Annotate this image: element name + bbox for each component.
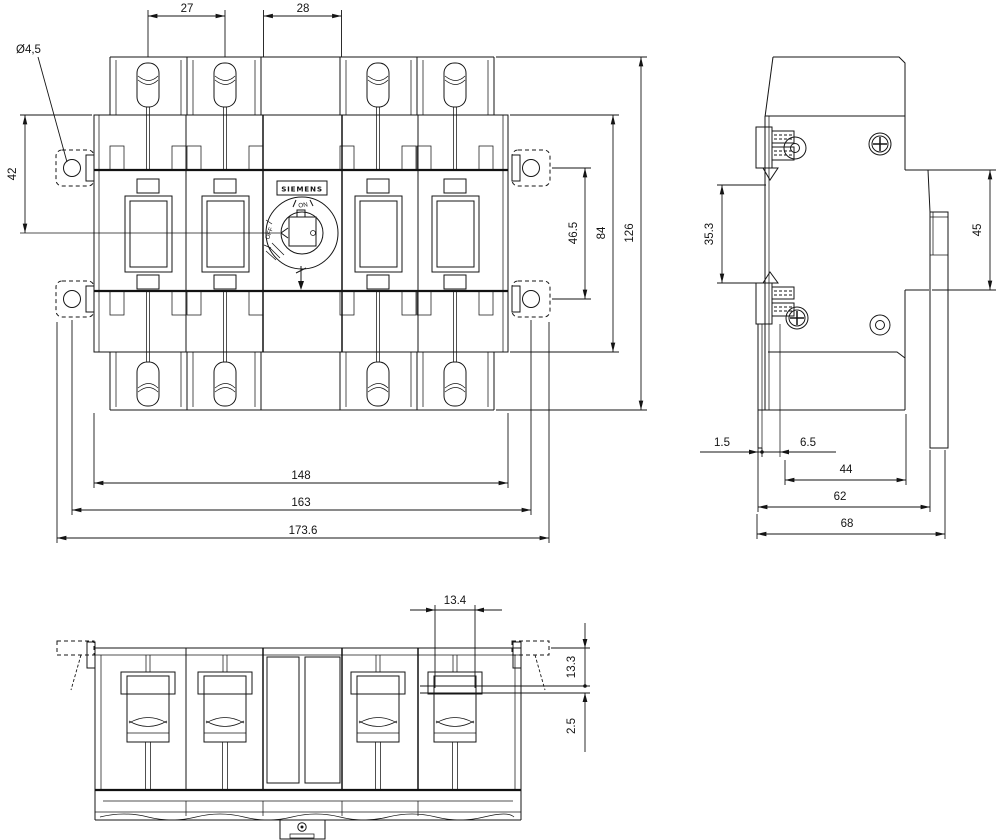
dim-label-hole-diameter: Ø4,5: [16, 44, 41, 56]
drawing-page: SIEMENS ON OFF: [0, 0, 1000, 840]
operator-module: SIEMENS ON OFF: [264, 181, 338, 290]
dim-label-46-5: 46.5: [568, 222, 580, 244]
dim-label-6-5: 6.5: [800, 437, 816, 449]
side-terminal-clamp-lower: [756, 272, 794, 457]
mount-hole-top-right: [523, 160, 540, 177]
pole-window-1: [125, 179, 172, 289]
dim-label-62: 62: [834, 491, 847, 503]
mount-tab-top-left: [56, 150, 94, 186]
terminal-screw-top-2: [214, 63, 236, 170]
dim-front-offset-and-cover: 1.5 6.5: [700, 437, 836, 457]
terminal-screw-top-4: [444, 63, 466, 170]
shoulders-bottom: [110, 291, 493, 315]
bottom-clamp-2: [198, 655, 252, 790]
mount-tab-top-right: [512, 150, 550, 186]
bottom-view: 13.4 13.3 2.5: [57, 595, 590, 839]
side-view: 35.3 45 1.5 6.5 44 62 6: [700, 57, 996, 539]
dim-top-to-center: 42: [7, 115, 92, 233]
dim-terminal-width: 13.4: [410, 595, 502, 688]
dim-depth-to-rail: 62: [758, 450, 930, 512]
dim-label-148: 148: [291, 470, 310, 482]
dim-label-35-3: 35.3: [704, 223, 716, 245]
terminal-screw-bottom-3: [367, 291, 389, 406]
dim-label-68: 68: [841, 518, 854, 530]
bottom-clamp-1: [121, 655, 175, 790]
terminal-screw-bottom-4: [444, 291, 466, 406]
bottom-clamp-3: [351, 655, 405, 790]
din-rail-clip[interactable]: [280, 820, 325, 839]
dim-label-28: 28: [297, 3, 310, 15]
dim-label-1-5: 1.5: [714, 437, 730, 449]
dim-label-42: 42: [7, 168, 19, 181]
shoulders-top: [110, 146, 493, 170]
mount-hole-bottom-right: [523, 291, 540, 308]
dim-center-module-width: 28: [264, 3, 342, 57]
dim-label-13-3: 13.3: [566, 656, 578, 678]
front-body: [20, 115, 508, 352]
bottom-dimensions: 13.4 13.3 2.5: [410, 595, 590, 752]
dim-body-width: 148: [94, 413, 508, 488]
dim-label-2-5: 2.5: [566, 718, 578, 734]
trip-indicator-symbol: [296, 266, 306, 290]
dim-label-45: 45: [972, 224, 984, 237]
side-dimensions: 35.3 45 1.5 6.5 44 62 6: [700, 170, 996, 539]
phillips-screw-lower-left: [786, 307, 808, 329]
mount-tab-bottom-left: [56, 281, 94, 317]
terminal-screw-bottom-1: [137, 291, 159, 406]
rail-tongue: [930, 212, 948, 448]
dim-label-27: 27: [181, 3, 194, 15]
side-outline: [758, 57, 948, 448]
front-top-terminals: [110, 57, 494, 170]
brand-label: SIEMENS: [281, 185, 323, 194]
dim-terminal-height: 13.3: [420, 623, 590, 693]
dim-clamp-offset: 2.5: [566, 693, 587, 752]
terminal-screw-bottom-2: [214, 291, 236, 406]
side-fasteners: [784, 133, 891, 335]
dim-label-13-4: 13.4: [444, 595, 467, 607]
dim-mount-hole-vspacing: 46.5: [552, 168, 591, 299]
knob-off-label: OFF: [264, 226, 275, 240]
bottom-clamp-4: [428, 655, 482, 790]
pole-window-2: [202, 179, 249, 289]
mount-hole-top-left: [64, 160, 81, 177]
phillips-screw-upper-right: [869, 133, 891, 155]
dim-label-126: 126: [624, 223, 636, 242]
dim-recess-height: 35.3: [704, 185, 766, 283]
dim-mount-hole-hspacing: 163: [72, 320, 531, 515]
technical-drawing: SIEMENS ON OFF: [0, 0, 1000, 840]
dim-label-44: 44: [840, 464, 853, 476]
dim-label-163: 163: [291, 497, 310, 509]
terminal-screw-top-3: [367, 63, 389, 170]
side-terminal-clamp-upper: [756, 127, 794, 180]
front-view: SIEMENS ON OFF: [7, 3, 647, 543]
mount-hole-bottom-left: [64, 291, 81, 308]
center-module-right-half: [305, 657, 340, 783]
mount-tab-bottom-right: [512, 281, 550, 317]
hole-upper-left: [784, 137, 806, 159]
pole-window-3: [355, 179, 402, 289]
pole-window-4: [432, 179, 479, 289]
knob-on-label: ON: [298, 201, 309, 209]
dim-label-173-6: 173.6: [289, 525, 318, 537]
terminal-screw-top-1: [137, 63, 159, 170]
dim-body-height: 84: [510, 115, 619, 352]
center-module-left-half: [267, 657, 299, 783]
bottom-terminal-clamps: [121, 655, 482, 790]
dim-hole-callout: Ø4,5: [16, 44, 67, 162]
front-bottom-terminals: [110, 291, 494, 410]
hole-lower-right: [870, 315, 890, 335]
dim-rail-height: 45: [908, 170, 996, 290]
dim-body-depth: 44: [785, 414, 906, 485]
dim-label-84: 84: [596, 226, 608, 239]
bottom-outline: [95, 648, 521, 820]
front-dimensions: 27 28 Ø4,5 42 46.5 84 126: [7, 3, 647, 543]
dim-terminal-pitch: 27: [148, 3, 225, 57]
